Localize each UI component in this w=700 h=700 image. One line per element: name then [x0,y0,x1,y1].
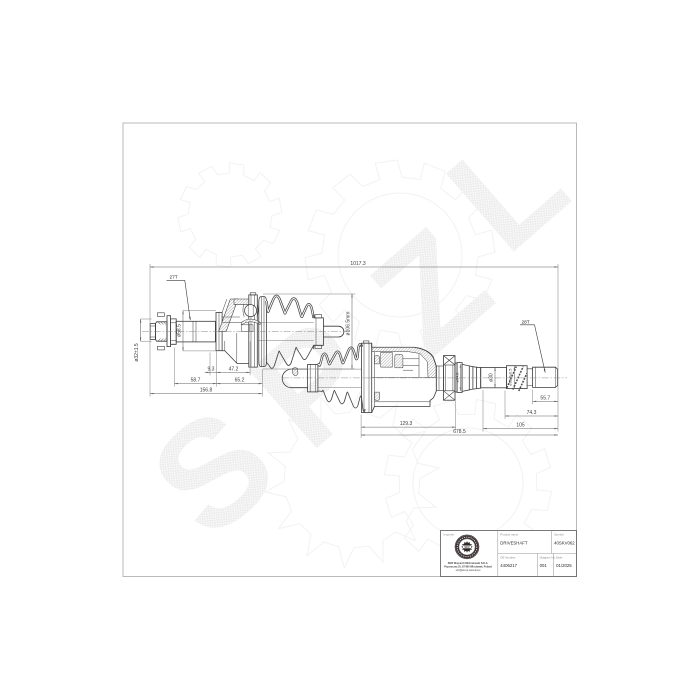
svg-text:info@skv.pl www.skv.pl: info@skv.pl www.skv.pl [456,569,481,572]
svg-text:ø30: ø30 [488,373,494,382]
svg-text:678.5: 678.5 [453,429,466,435]
svg-text:74.3: 74.3 [527,410,537,416]
svg-text:27T: 27T [170,275,178,280]
svg-text:1017.3: 1017.3 [350,261,366,267]
svg-text:ø34.5: ø34.5 [455,373,459,383]
svg-text:156.8: 156.8 [200,388,213,394]
svg-text:28T: 28T [522,319,530,324]
svg-text:55.7: 55.7 [540,395,550,401]
svg-text:01/2025: 01/2025 [556,563,572,568]
svg-text:001: 001 [540,563,548,568]
svg-text:Date: Date [556,555,562,559]
svg-text:47.2: 47.2 [229,366,239,372]
svg-text:40SKV062: 40SKV062 [554,541,575,546]
svg-text:Poprzeczna 25, 87-800 Wloclawe: Poprzeczna 25, 87-800 Wloclawek, Poland [444,566,492,569]
svg-text:ø19.8±0.5: ø19.8±0.5 [509,369,513,386]
svg-text:105: 105 [516,423,525,429]
svg-text:Product name: Product name [500,533,518,537]
svg-text:DRIVESHAFT: DRIVESHAFT [500,541,528,546]
svg-text:58.7: 58.7 [191,378,201,384]
svg-text:SKV: SKV [464,545,470,549]
svg-text:Symbol: Symbol [554,533,564,537]
svg-text:129.3: 129.3 [400,421,413,427]
svg-text:4406217: 4406217 [500,563,517,568]
svg-text:9.3: 9.3 [208,366,215,372]
svg-text:ø58.5: ø58.5 [177,324,183,337]
svg-text:Importer: Importer [444,533,455,537]
svg-text:65.2: 65.2 [235,378,245,384]
svg-text:SKB Wojciech Michniewski S.K.A: SKB Wojciech Michniewski S.K.A. [448,562,489,565]
svg-text:ø106.5mm: ø106.5mm [345,312,351,336]
svg-text:OE Number: OE Number [500,555,515,559]
svg-text:Diagram No.: Diagram No. [540,555,556,559]
svg-text:ø32±1.5: ø32±1.5 [134,343,140,362]
